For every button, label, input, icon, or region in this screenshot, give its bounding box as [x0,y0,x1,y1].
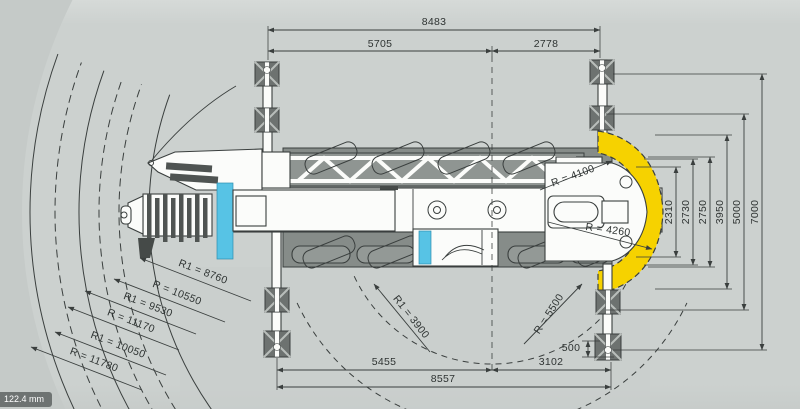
dim-label-bottom-left: 5455 [372,356,397,368]
dim-label-top-right: 2778 [534,38,559,50]
tire [292,246,350,263]
cab-window-band [419,231,431,264]
tire [357,246,415,263]
dim-label-top-left: 5705 [368,38,393,50]
jib-guy-line [152,86,236,160]
outrigger-beam [272,232,281,336]
dim-label-2750: 2750 [697,200,709,225]
tail-notch [602,201,628,223]
outrigger-pad [590,106,614,130]
boom-box [236,196,266,226]
outrigger-pad [590,60,614,84]
outrigger-pad [596,290,620,314]
nose-tip [121,206,131,224]
outrigger-pad [595,334,621,360]
dim-label-7000: 7000 [749,200,761,225]
dim-label-2730: 2730 [680,200,692,225]
measurement-tooltip: 122.4 mm [0,392,52,407]
outrigger-pad [264,331,290,357]
boom-pivot-band [217,183,233,259]
outrigger-pad [265,288,289,312]
dim-label-top-overall: 8483 [422,16,447,28]
outrigger-pad [255,62,279,86]
dim-label-500: 500 [562,342,580,354]
ground-shading [180,267,650,409]
crane-dimension-diagram: 8483 5705 2778 2310 2730 2750 3950 5000 … [0,0,800,409]
dim-label-5000: 5000 [731,200,743,225]
dim-label-3950: 3950 [714,200,726,225]
sheave-block [143,194,212,242]
dim-label-bottom-overall: 8557 [431,373,456,385]
dim-label-bottom-right: 3102 [539,356,564,368]
dim-label-2310: 2310 [663,200,675,225]
driver-cab [413,229,498,266]
outrigger-pad [255,108,279,132]
hook [138,238,155,258]
hoist-drum [554,202,598,222]
